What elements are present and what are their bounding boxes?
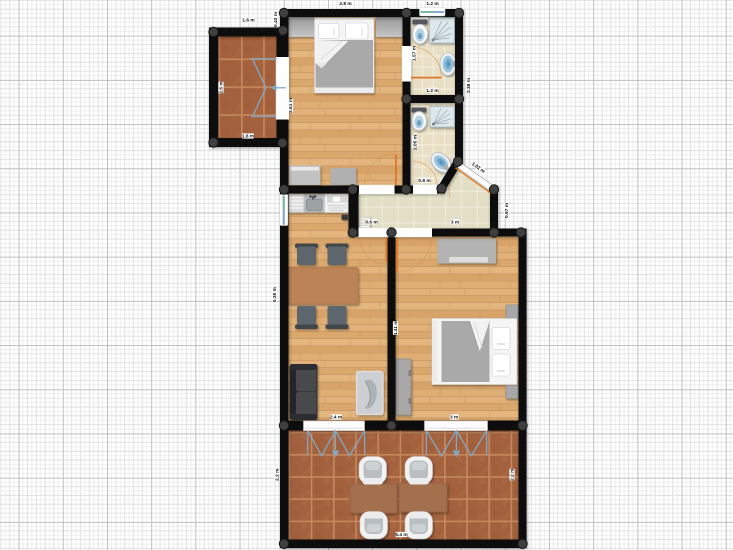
svg-text:0.8 m: 0.8 m bbox=[418, 178, 430, 184]
svg-text:1.57 m: 1.57 m bbox=[411, 46, 417, 61]
svg-text:0.97 m: 0.97 m bbox=[504, 203, 510, 218]
svg-text:2.2 m: 2.2 m bbox=[274, 469, 280, 481]
svg-text:5.38 m: 5.38 m bbox=[272, 287, 278, 302]
svg-text:2.4 m: 2.4 m bbox=[330, 415, 342, 421]
svg-text:0.43 m: 0.43 m bbox=[273, 12, 279, 27]
svg-text:1.6 m: 1.6 m bbox=[242, 134, 254, 140]
svg-text:3.61 m: 3.61 m bbox=[288, 98, 294, 113]
svg-text:1.2 m: 1.2 m bbox=[426, 88, 438, 94]
svg-text:2.05 m: 2.05 m bbox=[412, 135, 418, 150]
svg-text:3 m: 3 m bbox=[451, 219, 459, 225]
svg-text:2.2 m: 2.2 m bbox=[510, 469, 516, 481]
svg-text:4.41 m: 4.41 m bbox=[393, 321, 399, 336]
svg-text:0.6 m: 0.6 m bbox=[365, 219, 377, 225]
svg-text:3.38 m: 3.38 m bbox=[466, 78, 472, 93]
svg-text:2.6 m: 2.6 m bbox=[219, 81, 225, 93]
svg-text:2.8 m: 2.8 m bbox=[339, 1, 351, 7]
svg-text:3 m: 3 m bbox=[450, 415, 458, 421]
svg-text:1.2 m: 1.2 m bbox=[426, 1, 438, 7]
svg-text:5.4 m: 5.4 m bbox=[395, 532, 407, 538]
svg-text:1.6 m: 1.6 m bbox=[242, 18, 254, 24]
